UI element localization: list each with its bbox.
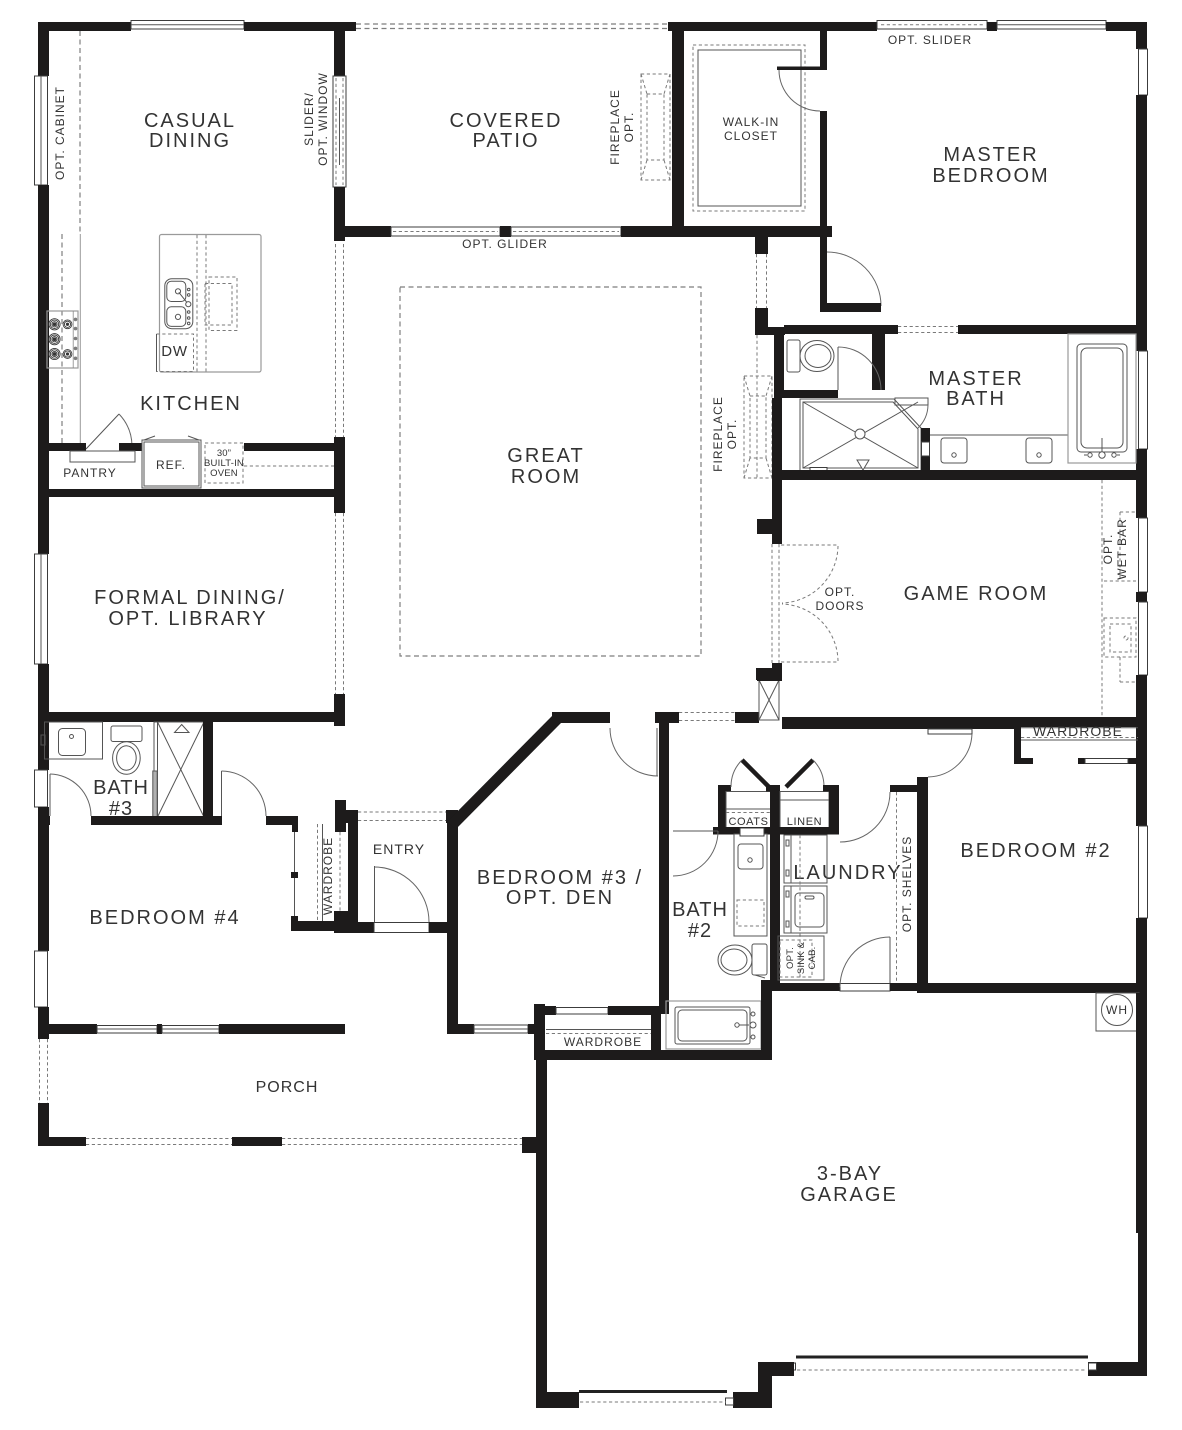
svg-text:BEDROOM #3 /: BEDROOM #3 / xyxy=(477,867,643,889)
svg-text:CLOSET: CLOSET xyxy=(724,129,778,143)
svg-text:OPT. DEN: OPT. DEN xyxy=(506,887,614,909)
svg-text:GAME ROOM: GAME ROOM xyxy=(904,583,1049,605)
svg-text:BEDROOM #2: BEDROOM #2 xyxy=(960,840,1111,862)
svg-text:OPT. GLIDER: OPT. GLIDER xyxy=(462,237,548,251)
svg-text:WARDROBE: WARDROBE xyxy=(564,1035,642,1049)
svg-text:OPT. SHELVES: OPT. SHELVES xyxy=(900,836,914,932)
svg-text:MASTER: MASTER xyxy=(943,144,1038,166)
svg-text:LINEN: LINEN xyxy=(787,816,822,828)
svg-text:BATH: BATH xyxy=(672,899,728,921)
svg-text:ENTRY: ENTRY xyxy=(373,841,425,857)
svg-text:WH: WH xyxy=(1106,1003,1128,1017)
svg-text:OPT.: OPT. xyxy=(785,947,796,969)
svg-text:#2: #2 xyxy=(688,920,712,942)
svg-text:PANTRY: PANTRY xyxy=(63,466,117,480)
svg-text:SINK &: SINK & xyxy=(796,941,807,974)
svg-text:BATH: BATH xyxy=(946,388,1006,410)
svg-text:REF.: REF. xyxy=(156,458,186,472)
svg-text:FIREPLACE: FIREPLACE xyxy=(608,89,622,165)
svg-text:ROOM: ROOM xyxy=(511,466,581,488)
svg-text:KITCHEN: KITCHEN xyxy=(140,393,242,415)
svg-text:OPT.: OPT. xyxy=(622,112,636,143)
svg-text:OPT. WINDOW: OPT. WINDOW xyxy=(316,72,330,166)
svg-text:WET BAR: WET BAR xyxy=(1115,518,1129,579)
svg-text:MASTER: MASTER xyxy=(928,368,1023,390)
svg-text:OPT.: OPT. xyxy=(1101,534,1115,565)
svg-text:OPT. CABINET: OPT. CABINET xyxy=(53,86,67,180)
svg-text:COVERED: COVERED xyxy=(450,110,563,132)
svg-text:LAUNDRY: LAUNDRY xyxy=(793,862,902,884)
svg-text:SLIDER/: SLIDER/ xyxy=(302,92,316,146)
svg-text:CASUAL: CASUAL xyxy=(144,110,236,132)
svg-text:PATIO: PATIO xyxy=(472,130,539,152)
svg-text:OPT. SLIDER: OPT. SLIDER xyxy=(888,33,972,47)
svg-text:OPT. LIBRARY: OPT. LIBRARY xyxy=(108,608,267,630)
svg-text:BATH: BATH xyxy=(93,777,149,799)
svg-text:WALK-IN: WALK-IN xyxy=(723,115,780,129)
svg-text:OVEN: OVEN xyxy=(210,468,238,479)
svg-text:FIREPLACE: FIREPLACE xyxy=(711,396,725,472)
svg-text:DOORS: DOORS xyxy=(815,599,864,613)
svg-text:COATS: COATS xyxy=(728,816,768,828)
svg-text:WARDROBE: WARDROBE xyxy=(1033,723,1123,739)
svg-text:OPT.: OPT. xyxy=(725,419,739,450)
svg-text:BEDROOM: BEDROOM xyxy=(932,165,1049,187)
svg-text:WARDROBE: WARDROBE xyxy=(321,837,335,915)
svg-text:GREAT: GREAT xyxy=(507,445,584,467)
svg-text:FORMAL DINING/: FORMAL DINING/ xyxy=(94,587,286,609)
svg-text:DW: DW xyxy=(161,343,188,360)
svg-text:BEDROOM #4: BEDROOM #4 xyxy=(89,907,240,929)
svg-text:PORCH: PORCH xyxy=(256,1079,319,1096)
svg-text:DINING: DINING xyxy=(149,130,231,152)
svg-text:GARAGE: GARAGE xyxy=(800,1184,898,1206)
svg-text:CAB.: CAB. xyxy=(807,947,818,970)
svg-text:3-BAY: 3-BAY xyxy=(817,1163,883,1185)
svg-text:OPT.: OPT. xyxy=(825,585,856,599)
